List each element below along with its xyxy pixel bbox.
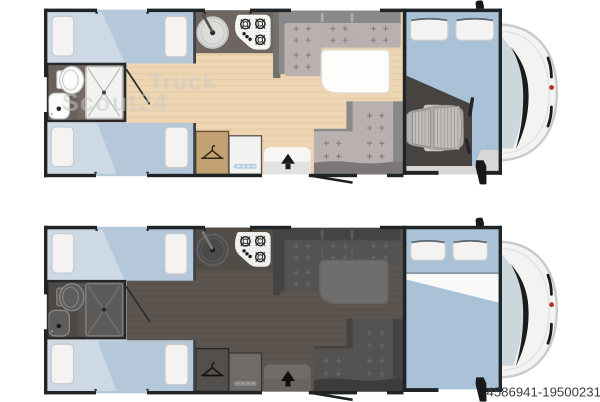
svg-text:4586941-19500231: 4586941-19500231 — [487, 385, 600, 400]
svg-text:Scout24: Scout24 — [62, 89, 168, 117]
